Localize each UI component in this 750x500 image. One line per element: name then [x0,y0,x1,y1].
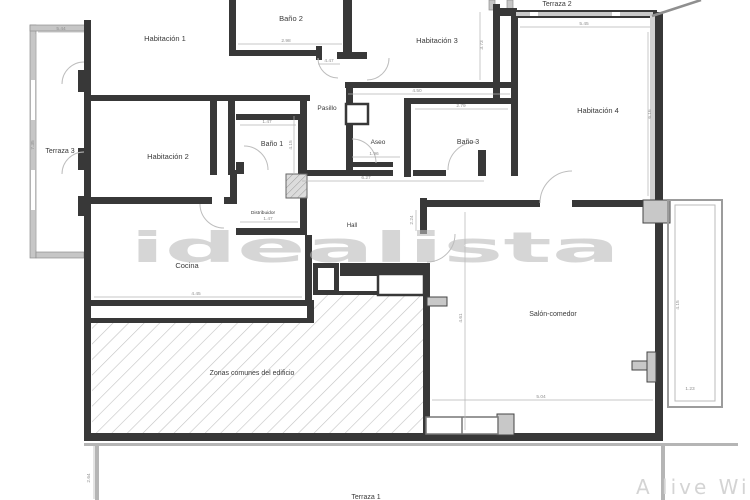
elevator-box [378,274,424,295]
floor-plan-canvas: 5.44 2.98 4.47 3.73 4.50 2.79 5.45 6.16 … [0,0,750,500]
dim-label: 7.35 [30,140,36,150]
dim-label: 5.44 [56,26,66,32]
room-label-distribuidor: Distribuidor [251,210,276,216]
terrace1-top-line [84,443,738,446]
bottom-window [426,417,498,434]
room-label-zonas-comunes: Zonas comunes del edificio [210,370,295,377]
dim-label: 5.45 [579,21,589,27]
room-label-aseo: Aseo [371,139,386,146]
dim-label: 6.16 [647,109,653,119]
room-label-habitacion-3: Habitación 3 [416,36,458,45]
dim-label: 4.15 [675,300,681,310]
dim-label: 2.79 [456,103,466,109]
dim-label: 5.04 [536,394,546,400]
room-label-terraza-2: Terraza 2 [542,1,571,8]
dim-label: 2.98 [281,38,291,44]
room-label-habitacion-4: Habitación 4 [577,106,619,115]
dim-label: 3.73 [479,40,485,50]
dim-label: 4.61 [458,313,464,323]
watermark-corner: A live Wi [636,475,750,499]
room-label-terraza-1: Terraza 1 [351,494,380,500]
dim-label: 1.47 [263,216,273,222]
room-label-cocina: Cocina [175,261,199,270]
room-label-pasillo: Pasillo [317,105,337,112]
wall-infill [516,0,701,202]
dim-label: 4.47 [324,58,334,64]
floor-plan-drawing: 5.44 2.98 4.47 3.73 4.50 2.79 5.45 6.16 … [0,0,750,500]
shaft-box [346,104,368,124]
dim-label: 4.50 [412,88,422,94]
dim-label: 4.15 [288,140,294,150]
dim-label: 4.45 [191,291,201,297]
room-label-hall: Hall [347,223,357,229]
dim-label: 1.96 [369,151,379,157]
dim-label: 2.64 [86,473,92,483]
room-label-bano-2: Baño 2 [279,14,303,23]
room-label-terraza-3: Terraza 3 [45,148,74,155]
watermark-idealista: idealista [130,223,620,272]
corner-diagonal-wall [652,0,701,16]
dim-label: 1.23 [685,386,695,392]
room-label-habitacion-2: Habitación 2 [147,152,189,161]
hatch-areas [92,295,423,433]
room-label-salon-comedor: Salón-comedor [529,311,577,318]
room-label-habitacion-1: Habitación 1 [144,34,186,43]
dim-label: 6.27 [361,175,371,181]
dim-label: 1.47 [262,119,272,125]
duct-shaft-hatched [286,174,307,198]
room-label-bano-1: Baño 1 [261,141,283,148]
room-label-bano-3: Baño 3 [457,139,479,146]
